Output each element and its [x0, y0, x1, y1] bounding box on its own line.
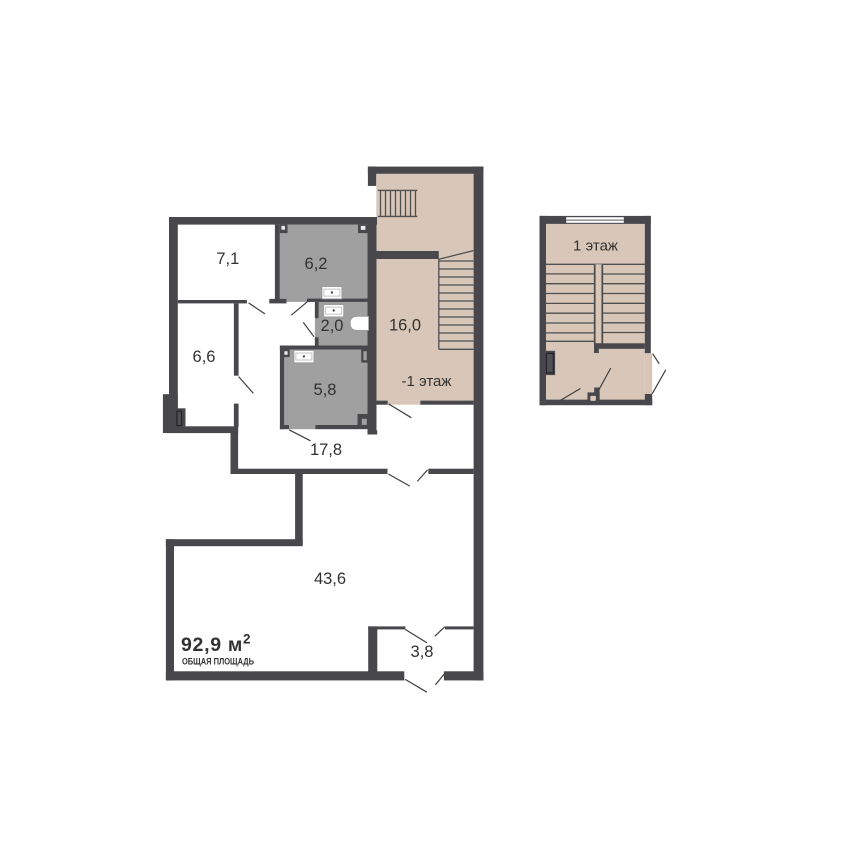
svg-text:16,0: 16,0	[389, 316, 421, 334]
svg-text:1 этаж: 1 этаж	[573, 237, 618, 254]
svg-text:43,6: 43,6	[314, 570, 346, 588]
svg-text:6,6: 6,6	[193, 348, 216, 366]
svg-text:7,1: 7,1	[216, 250, 239, 268]
svg-text:-1 этаж: -1 этаж	[402, 373, 452, 390]
svg-text:3,8: 3,8	[411, 643, 434, 661]
svg-text:ОБЩАЯ ПЛОЩАДЬ: ОБЩАЯ ПЛОЩАДЬ	[182, 656, 254, 666]
svg-text:92,9 м2: 92,9 м2	[181, 632, 251, 657]
svg-text:6,2: 6,2	[305, 255, 328, 273]
svg-text:5,8: 5,8	[314, 381, 337, 399]
svg-text:17,8: 17,8	[310, 441, 342, 459]
svg-text:2,0: 2,0	[321, 317, 344, 335]
